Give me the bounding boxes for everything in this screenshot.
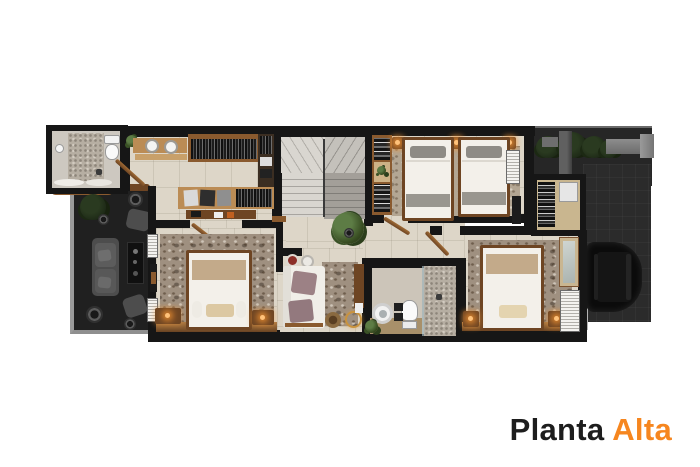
loveseat-base bbox=[285, 323, 323, 327]
loveseat-pillow bbox=[291, 270, 318, 295]
closet2 bbox=[531, 174, 586, 236]
car-rear-window bbox=[594, 254, 598, 300]
toilet1-bowl bbox=[105, 144, 119, 160]
lamp-glow-icon bbox=[395, 140, 400, 145]
bed-headboard-band bbox=[486, 254, 538, 274]
bedroom2-tv-panel bbox=[512, 196, 521, 224]
shower1-drain-icon bbox=[96, 169, 102, 175]
console-paper bbox=[214, 212, 223, 218]
floor-plan-canvas: Planta Alta bbox=[0, 0, 700, 467]
vanity-sink bbox=[164, 140, 178, 154]
bed-pillow bbox=[410, 146, 446, 158]
toilet2-tank bbox=[402, 321, 417, 329]
sofa-throw-pillow bbox=[97, 276, 111, 288]
wall-bedroom3-top-b bbox=[460, 226, 534, 235]
wall-bottom-b bbox=[276, 332, 366, 342]
storage-box bbox=[559, 182, 578, 202]
vent-duct-cap bbox=[640, 134, 654, 158]
bathroom-plant-icon bbox=[365, 320, 378, 333]
bedroom3-shutter bbox=[560, 290, 580, 332]
floor-plan bbox=[0, 0, 700, 467]
bath-counter-tray bbox=[394, 313, 403, 321]
twin-bed bbox=[458, 137, 510, 217]
vent-duct bbox=[606, 139, 642, 154]
folded-clothes bbox=[374, 184, 390, 212]
bed-pillow bbox=[466, 146, 502, 158]
car bbox=[586, 242, 642, 312]
title-word-accent: Alta bbox=[612, 412, 672, 447]
shower2-mosaic bbox=[424, 266, 456, 336]
console-box bbox=[227, 212, 234, 218]
plan-title: Planta Alta bbox=[510, 412, 672, 448]
bed-runner bbox=[406, 194, 450, 207]
lamp-glow-icon bbox=[468, 316, 473, 321]
table-decor bbox=[133, 249, 138, 254]
void-pot bbox=[128, 192, 143, 207]
lamp-glow-icon bbox=[554, 316, 559, 321]
console-decor bbox=[191, 211, 201, 217]
vanity-counter bbox=[133, 138, 187, 153]
vanity-sink bbox=[145, 139, 159, 153]
stairs-flight-up bbox=[282, 173, 324, 217]
wall-master-sitting bbox=[276, 220, 283, 272]
sitting-wall-console bbox=[354, 264, 364, 308]
lamp-glow-icon bbox=[260, 315, 265, 320]
storage-box bbox=[260, 157, 272, 166]
void-sofa bbox=[92, 238, 119, 296]
hanging-clothes bbox=[191, 139, 257, 159]
vanity-shelf bbox=[135, 154, 187, 160]
shower2-drain-icon bbox=[436, 294, 442, 300]
closet-console bbox=[186, 210, 256, 219]
bed-duvet bbox=[484, 274, 540, 326]
bath1-mat bbox=[54, 179, 84, 186]
folded-stack bbox=[217, 190, 232, 206]
console-decor bbox=[151, 272, 156, 284]
chimney-block bbox=[559, 131, 572, 180]
wardrobe-mirror bbox=[559, 237, 579, 287]
nightstand bbox=[252, 310, 274, 325]
folded-clothes bbox=[374, 138, 390, 160]
bed-runner bbox=[462, 192, 506, 205]
sink-drain-icon bbox=[379, 310, 387, 318]
storage-box bbox=[260, 169, 272, 178]
title-word-dark: Planta bbox=[510, 412, 605, 447]
master-bed bbox=[186, 250, 252, 330]
stairs-rail bbox=[323, 139, 325, 217]
toilet2-bowl bbox=[401, 300, 418, 321]
folded-stack bbox=[200, 190, 216, 207]
shelf-plant-icon bbox=[377, 166, 386, 175]
closet-rack-top bbox=[188, 134, 260, 162]
bed-pillow bbox=[499, 305, 527, 318]
console-frames bbox=[355, 303, 363, 313]
bed-fold-line bbox=[406, 160, 450, 162]
closet-shelf-unit bbox=[258, 134, 274, 192]
master-shutter bbox=[147, 234, 158, 258]
bedroom3-bed bbox=[480, 245, 544, 331]
table-decor bbox=[133, 271, 138, 276]
hanging-clothes bbox=[260, 136, 272, 154]
shower1-head-icon bbox=[55, 144, 64, 153]
bed-fold-line bbox=[462, 160, 506, 162]
wall-closet-master-a bbox=[148, 220, 190, 228]
bed-roll-pillow bbox=[236, 301, 246, 318]
car-windshield bbox=[626, 254, 631, 300]
folded-stack bbox=[183, 190, 198, 207]
hanging-clothes bbox=[538, 182, 555, 227]
hall-plant-pot bbox=[344, 228, 354, 238]
bath-counter-tray bbox=[394, 303, 403, 311]
lamp-glow-icon bbox=[165, 313, 170, 318]
loveseat-pillow bbox=[288, 299, 314, 323]
stairs-threshold bbox=[272, 216, 286, 222]
roof-box bbox=[542, 137, 558, 147]
void-pot bbox=[98, 214, 109, 225]
twin-bed bbox=[402, 137, 454, 221]
void-pot bbox=[86, 306, 103, 323]
wall-bedroom2-bottom-left bbox=[364, 214, 384, 223]
stairs-winder-right bbox=[325, 137, 365, 173]
loveseat bbox=[283, 266, 325, 328]
stairs-winder-left bbox=[281, 137, 325, 173]
towel-ladder bbox=[506, 150, 520, 184]
table-decor bbox=[133, 260, 137, 264]
gold-ring-lamp bbox=[345, 311, 362, 328]
bedroom2-shelf-unit bbox=[372, 135, 392, 215]
toilet1-tank bbox=[104, 135, 120, 144]
mirror-panel bbox=[563, 241, 575, 283]
nightstand bbox=[155, 308, 181, 324]
closet-island bbox=[178, 187, 274, 209]
void-coffee-table bbox=[127, 242, 144, 284]
nightstand bbox=[463, 311, 479, 327]
shower2-glass bbox=[422, 266, 424, 336]
bed-roll-pillow bbox=[192, 301, 202, 318]
hanging-clothes bbox=[236, 189, 272, 207]
wall-bedroom3-top-a bbox=[430, 226, 442, 235]
bed-pillow bbox=[206, 304, 234, 317]
bath1-mat bbox=[86, 179, 112, 186]
sofa-throw-pillow bbox=[97, 249, 111, 262]
basket-pouf bbox=[325, 312, 341, 328]
void-pot bbox=[124, 318, 136, 330]
bed-headboard-band bbox=[192, 260, 246, 280]
